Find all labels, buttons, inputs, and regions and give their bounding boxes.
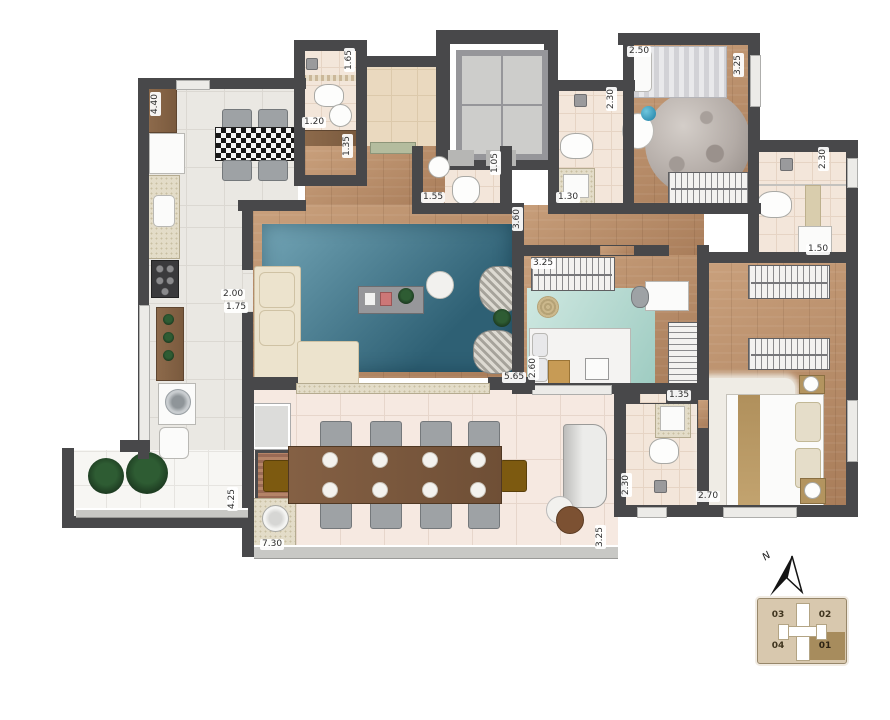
dimension-label: 2.30 [818, 147, 829, 171]
dimension-label: 1.05 [490, 151, 501, 175]
dimension-label: 5.65 [502, 372, 526, 383]
dimension-label: 1.65 [344, 48, 355, 72]
dimension-label: 1.35 [342, 134, 353, 158]
dimension-label: 2.60 [528, 356, 539, 380]
dimension-label: 3.60 [512, 207, 523, 231]
keyplan-notch [816, 624, 827, 640]
dimension-label: 2.30 [606, 87, 617, 111]
dimension-label: 2.70 [696, 491, 720, 502]
dimension-label: 1.35 [667, 390, 691, 401]
dimension-label: 7.30 [260, 539, 284, 550]
dimension-label: 3.25 [733, 53, 744, 77]
dimension-label: 1.50 [806, 244, 830, 255]
keyplan-notch [778, 624, 789, 640]
dimension-label: 3.25 [531, 258, 555, 269]
north-arrow-icon [762, 552, 810, 604]
building-keyplan: 03 02 04 01 [757, 598, 847, 664]
dimension-label: 2.50 [627, 46, 651, 57]
dimension-label: 1.75 [224, 302, 248, 313]
dimension-label: 4.40 [150, 92, 161, 116]
dimension-label: 1.20 [302, 117, 326, 128]
dimension-label: 2.00 [221, 289, 245, 300]
dimension-label: 1.30 [556, 192, 580, 203]
floor-plan: 4.401.651.201.352.503.252.301.051.551.30… [0, 0, 890, 720]
dimension-label: 4.25 [227, 487, 238, 511]
dimension-label: 2.30 [621, 473, 632, 497]
dimension-label: 3.25 [595, 525, 606, 549]
dimension-label: 1.55 [421, 192, 445, 203]
